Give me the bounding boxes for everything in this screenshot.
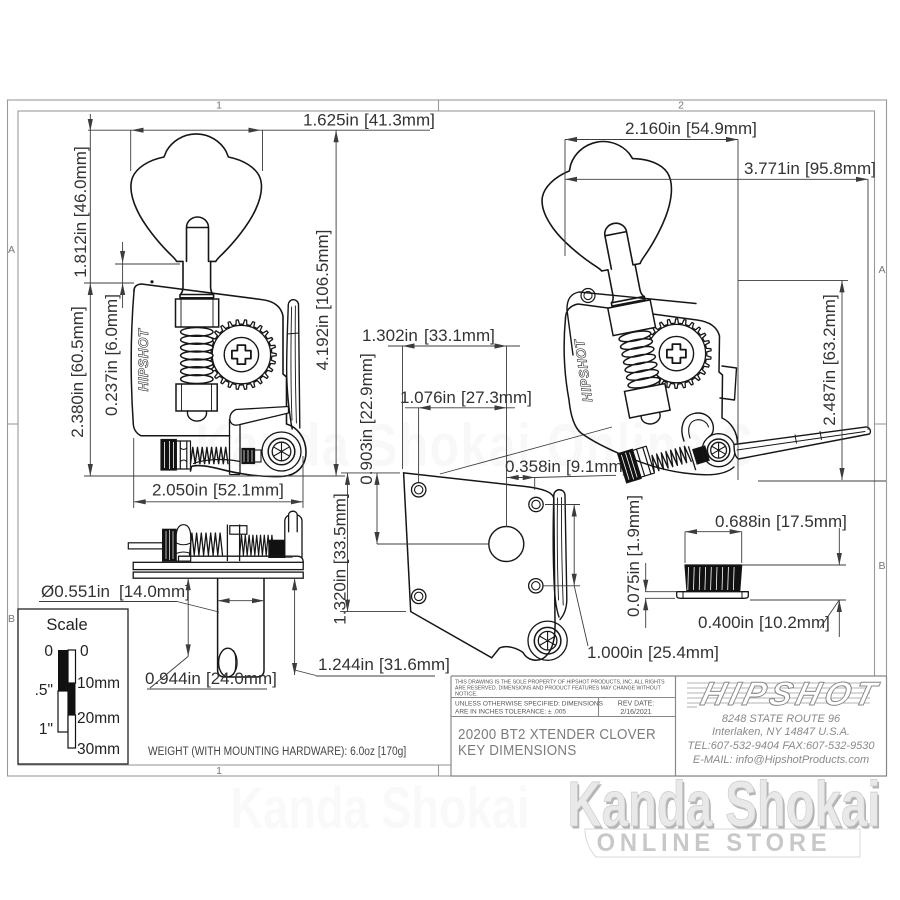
svg-text:HIPSHOT: HIPSHOT [136,327,151,391]
svg-text:[54.9mm]: [54.9mm] [686,119,757,138]
svg-text:[14.0mm]: [14.0mm] [119,582,190,601]
svg-text:[25.4mm]: [25.4mm] [648,643,719,662]
svg-text:Ø0.551in: Ø0.551in [41,582,110,601]
svg-text:0.400in: 0.400in [698,613,754,632]
svg-text:[24.0mm]: [24.0mm] [206,669,277,688]
svg-text:2.487in [63.2mm]: 2.487in [63.2mm] [820,294,839,425]
svg-text:8248 STATE ROUTE 96: 8248 STATE ROUTE 96 [722,713,841,725]
svg-text:1": 1" [39,721,53,738]
svg-text:ARE RESERVED. DIMENSIONS AND P: ARE RESERVED. DIMENSIONS AND PRODUCT FEA… [455,685,661,691]
svg-text:0.944in: 0.944in [145,669,201,688]
svg-text:2: 2 [678,100,684,112]
svg-text:TEL:607-532-9404 FAX:607-532-9: TEL:607-532-9404 FAX:607-532-9530 [688,740,876,752]
svg-text:0.903in [22.9mm]: 0.903in [22.9mm] [357,353,376,484]
svg-text:[33.1mm]: [33.1mm] [424,326,495,345]
svg-text:0.358in: 0.358in [505,457,561,476]
svg-text:[52.1mm]: [52.1mm] [213,481,284,500]
svg-text:KEY DIMENSIONS: KEY DIMENSIONS [458,742,577,759]
svg-text:Kanda Shokai: Kanda Shokai [230,777,529,842]
svg-text:Scale: Scale [46,616,87,634]
svg-text:WEIGHT (WITH MOUNTING HARDWARE: WEIGHT (WITH MOUNTING HARDWARE): 6.0oz [… [148,745,406,758]
svg-text:NOTICE.: NOTICE. [455,692,478,698]
svg-text:.5": .5" [35,682,53,699]
svg-text:1: 1 [216,100,222,112]
svg-text:0.237in [6.0mm]: 0.237in [6.0mm] [102,294,121,416]
svg-text:A: A [8,244,15,256]
svg-text:B: B [878,560,885,572]
svg-text:UNLESS OTHERWISE SPECIFIED: DI: UNLESS OTHERWISE SPECIFIED: DIMENSIONS [455,701,604,708]
svg-text:[17.5mm]: [17.5mm] [776,512,847,531]
svg-text:1.076in: 1.076in [400,388,456,407]
svg-text:[41.3mm]: [41.3mm] [364,111,435,130]
svg-text:4.192in [106.5mm]: 4.192in [106.5mm] [313,230,332,371]
svg-text:0: 0 [80,643,89,660]
svg-text:Kanda Shokai Online S: Kanda Shokai Online S [195,412,754,479]
svg-text:2/16/2021: 2/16/2021 [620,709,651,716]
svg-text:1.244in: 1.244in [318,655,374,674]
svg-text:0.688in: 0.688in [715,512,771,531]
svg-text:20200 BT2 XTENDER CLOVER: 20200 BT2 XTENDER CLOVER [458,726,656,743]
svg-text:[9.1mm]: [9.1mm] [566,457,627,476]
svg-text:ARE IN INCHES TOLERANCE: ± .00: ARE IN INCHES TOLERANCE: ± .005 [455,709,566,716]
svg-text:B: B [8,613,15,625]
svg-text:0.075in [1.9mm]: 0.075in [1.9mm] [624,495,643,617]
svg-text:10mm: 10mm [77,675,120,692]
svg-text:2.380in [60.5mm]: 2.380in [60.5mm] [68,306,87,437]
svg-text:[95.8mm]: [95.8mm] [805,159,876,178]
svg-text:30mm: 30mm [77,741,120,758]
svg-text:1: 1 [216,765,222,777]
svg-text:1.302in: 1.302in [362,326,418,345]
svg-text:[10.2mm]: [10.2mm] [759,613,830,632]
svg-text:1.812in [46.0mm]: 1.812in [46.0mm] [71,146,90,277]
svg-text:3.771in: 3.771in [744,159,800,178]
svg-text:HIPSHOT: HIPSHOT [697,676,884,712]
svg-text:0: 0 [44,643,53,660]
svg-text:1.000in: 1.000in [587,643,643,662]
svg-text:2.160in: 2.160in [625,119,681,138]
svg-text:20mm: 20mm [77,710,120,727]
svg-text:A: A [878,264,885,276]
svg-text:1.625in: 1.625in [303,111,359,130]
svg-text:[31.6mm]: [31.6mm] [379,655,450,674]
svg-text:2.050in: 2.050in [152,481,208,500]
svg-text:1.320in [33.5mm]: 1.320in [33.5mm] [331,493,350,624]
svg-text:ONLINE STORE: ONLINE STORE [597,829,832,857]
svg-text:[27.3mm]: [27.3mm] [461,388,532,407]
svg-text:REV DATE:: REV DATE: [618,701,654,708]
svg-text:Interlaken, NY 14847 U.S.A.: Interlaken, NY 14847 U.S.A. [712,726,850,738]
svg-text:E-MAIL: info@HipshotProducts.c: E-MAIL: info@HipshotProducts.com [693,754,869,766]
